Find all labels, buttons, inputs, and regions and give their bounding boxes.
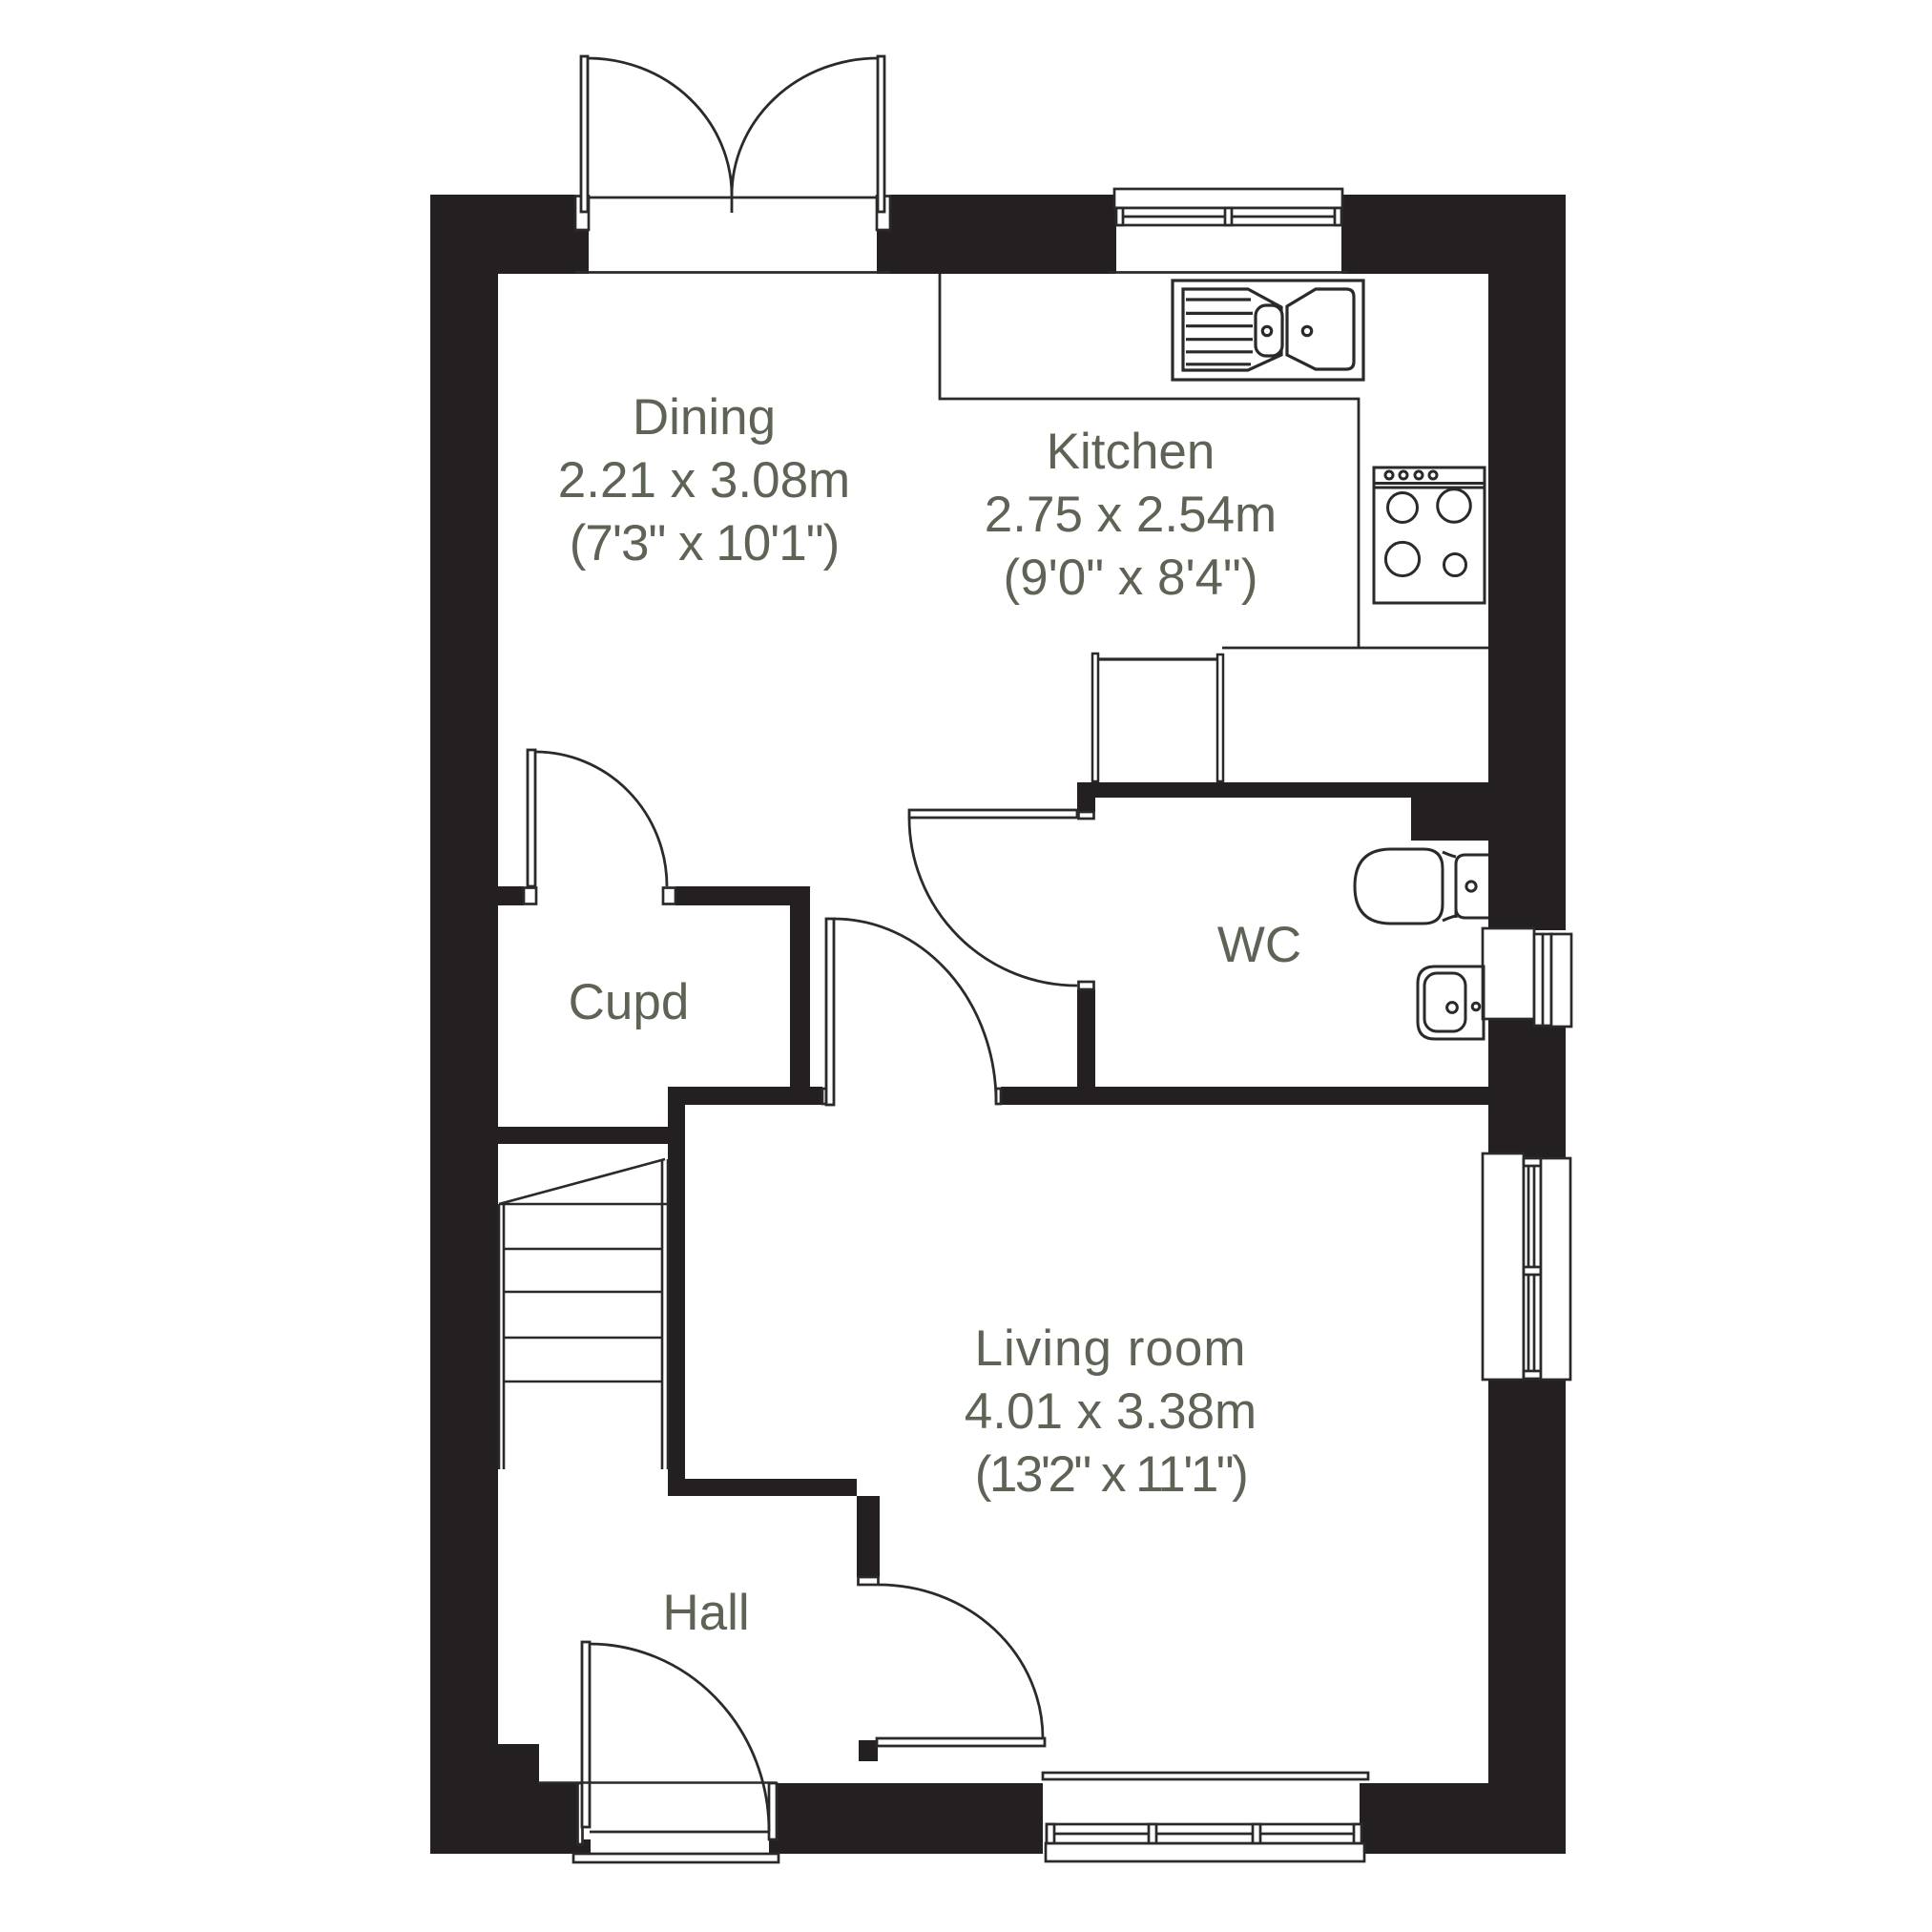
- svg-text:Kitchen: Kitchen: [1047, 424, 1215, 480]
- svg-text:(13'2" x 11'1"): (13'2" x 11'1"): [975, 1446, 1247, 1503]
- svg-text:2.75 x 2.54m: 2.75 x 2.54m: [985, 487, 1277, 543]
- svg-text:(9'0" x 8'4"): (9'0" x 8'4"): [1003, 550, 1257, 606]
- svg-text:Living room: Living room: [975, 1320, 1247, 1377]
- svg-text:2.21 x 3.08m: 2.21 x 3.08m: [558, 452, 850, 509]
- svg-text:4.01 x 3.38m: 4.01 x 3.38m: [965, 1383, 1257, 1440]
- svg-text:Dining: Dining: [633, 389, 776, 446]
- svg-text:Hall: Hall: [662, 1585, 749, 1641]
- svg-text:(7'3" x 10'1"): (7'3" x 10'1"): [570, 515, 840, 571]
- svg-text:WC: WC: [1217, 917, 1301, 973]
- svg-text:Cupd: Cupd: [569, 974, 690, 1030]
